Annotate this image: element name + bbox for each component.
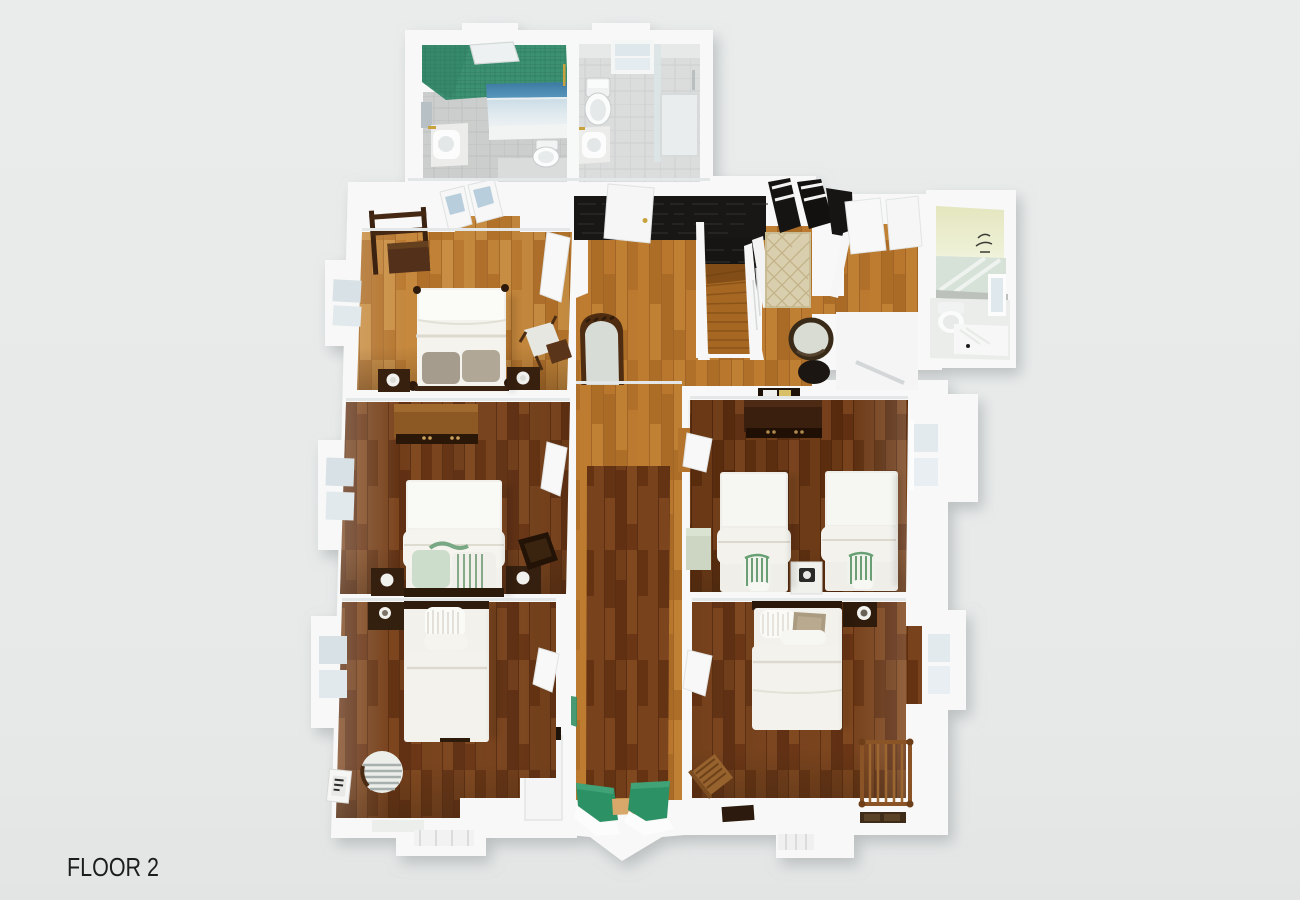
svg-text:FLOOR 2: FLOOR 2 — [67, 852, 159, 882]
